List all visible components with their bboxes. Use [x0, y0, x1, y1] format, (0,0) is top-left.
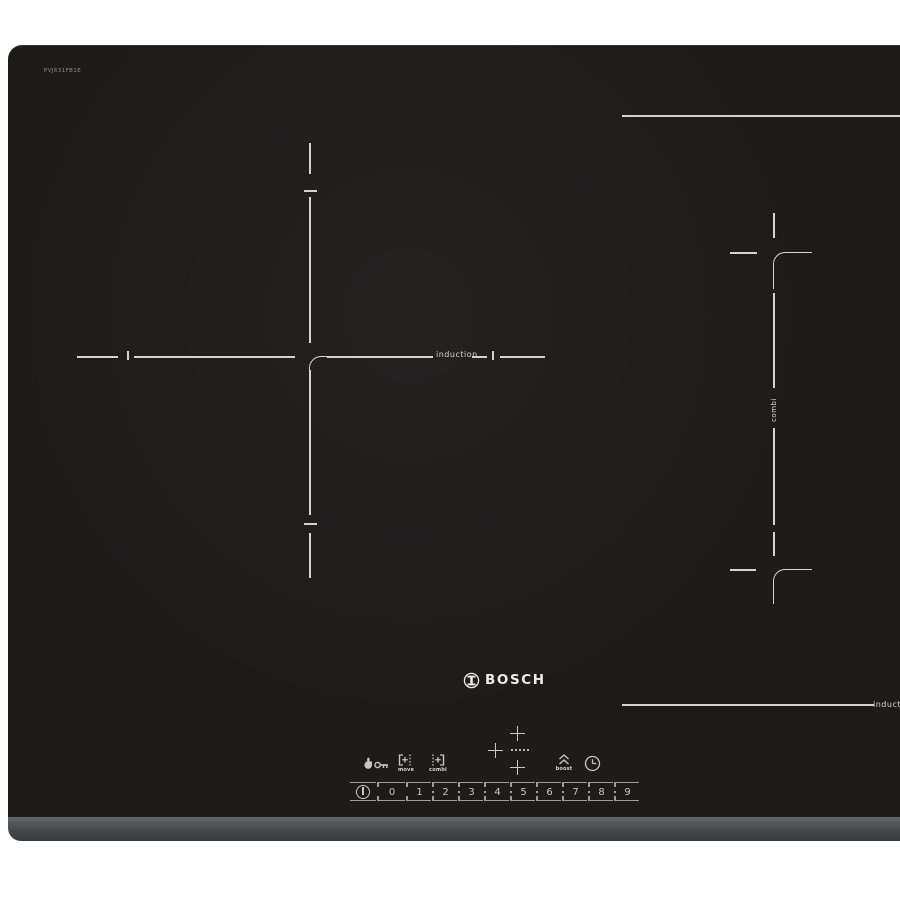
zone-select-plus-bottom-icon[interactable] [510, 760, 525, 775]
model-number-label: PVJ631FB1E [44, 68, 81, 74]
slider-level-0[interactable]: 0 [379, 782, 405, 801]
slider-level-5[interactable]: 5 [512, 782, 535, 801]
bosch-emblem-icon [463, 672, 480, 689]
boost-key-label[interactable]: boost [554, 766, 574, 772]
cooktop-glass-surface: PVJ631FB1E induction comb [8, 45, 900, 817]
zone-select-plus-left-icon[interactable] [488, 743, 503, 758]
brand-wordmark: BOSCH [485, 672, 546, 689]
slider-separator [405, 782, 408, 801]
zone-line [773, 428, 775, 525]
slider-separator [509, 782, 512, 801]
zone-tick [304, 523, 317, 525]
zone-line [134, 356, 295, 358]
slider-separator [587, 782, 590, 801]
slider-separator [483, 782, 486, 801]
slider-separator [376, 782, 379, 801]
left-zone-induction-label: induction [436, 350, 478, 359]
zone-line [309, 143, 311, 174]
zone-separator-line [622, 115, 900, 117]
child-lock-hand-key-icon[interactable] [362, 755, 390, 771]
slider-level-7[interactable]: 7 [564, 782, 587, 801]
zone-line [309, 370, 311, 515]
combi-icon[interactable] [431, 754, 445, 766]
zone-corner [773, 252, 812, 289]
slider-level-8[interactable]: 8 [590, 782, 613, 801]
zone-line [500, 356, 545, 358]
zone-line [309, 533, 311, 578]
zone-separator-line [622, 704, 874, 706]
zone-line [327, 356, 433, 358]
move-key-label[interactable]: move [396, 767, 416, 773]
power-icon[interactable] [356, 785, 370, 799]
right-zone-combi-label: combi [770, 389, 778, 431]
timer-clock-icon[interactable] [584, 755, 601, 772]
slider-separator [561, 782, 564, 801]
slider-separator [613, 782, 616, 801]
zone-tick [730, 569, 756, 571]
slider-level-3[interactable]: 3 [460, 782, 483, 801]
zone-tick [472, 356, 487, 358]
zone-tick [492, 351, 494, 360]
bottom-right-induction-label: induction [873, 700, 900, 709]
slider-level-9[interactable]: 9 [616, 782, 639, 801]
zone-tick [730, 252, 757, 254]
slider-separator [457, 782, 460, 801]
zone-select-plus-top-icon[interactable] [510, 726, 525, 741]
combi-key-label[interactable]: combi [428, 767, 448, 773]
slider-separator [431, 782, 434, 801]
slider-power-key[interactable] [350, 782, 376, 801]
slider-level-4[interactable]: 4 [486, 782, 509, 801]
glass-reflection [8, 45, 900, 817]
slider-level-2[interactable]: 2 [434, 782, 457, 801]
zone-tick [127, 351, 129, 360]
move-icon[interactable] [398, 754, 412, 766]
power-slider[interactable]: 0123456789 [350, 782, 639, 801]
zone-tick [773, 213, 775, 238]
dotted-connector [511, 749, 529, 751]
zone-tick [773, 532, 775, 556]
zone-corner [773, 569, 812, 604]
boost-chevrons-icon[interactable] [558, 754, 570, 765]
zone-line [77, 356, 118, 358]
zone-tick [304, 190, 317, 192]
slider-level-1[interactable]: 1 [408, 782, 431, 801]
product-photo-induction-hob: PVJ631FB1E induction comb [0, 0, 900, 900]
zone-line [773, 293, 775, 388]
zone-corner [309, 356, 330, 372]
slider-separator [535, 782, 538, 801]
front-bevel-edge [8, 817, 900, 841]
zone-line [309, 197, 311, 343]
slider-level-6[interactable]: 6 [538, 782, 561, 801]
